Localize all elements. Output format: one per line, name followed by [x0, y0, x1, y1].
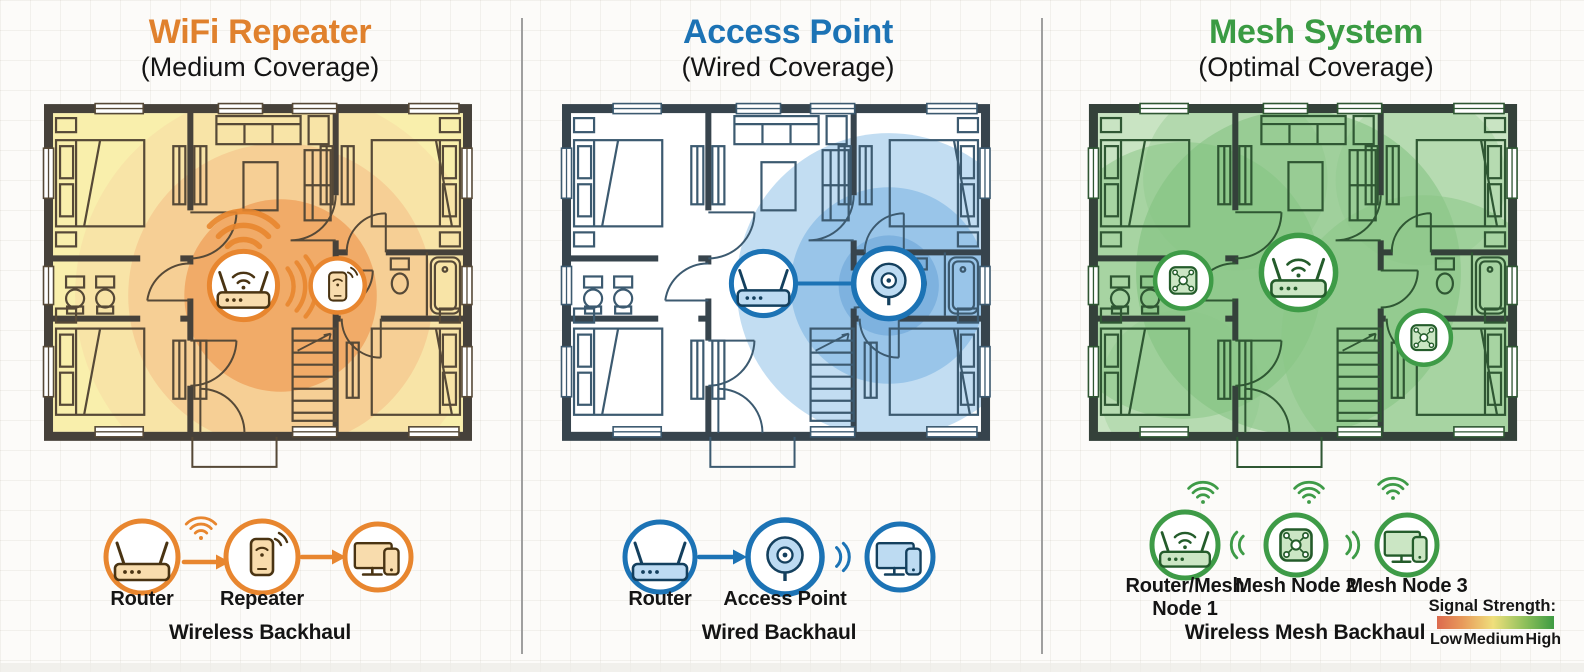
- legend-label-access-point: Access Point: [710, 588, 860, 611]
- signal-low-label: Low: [1430, 631, 1462, 649]
- router-marker: [731, 251, 795, 315]
- panel-divider: [1041, 18, 1043, 654]
- router-marker: [1261, 235, 1335, 309]
- floor-plan-access-point: [558, 100, 994, 476]
- mesh-node-1-marker: [1155, 252, 1211, 308]
- panel-header: Mesh System (Optimal Coverage): [1056, 14, 1576, 82]
- mesh-node-icon: [1281, 530, 1312, 561]
- wifi-waves-icon: [1231, 532, 1243, 558]
- panel-subtitle: (Wired Coverage): [528, 53, 1048, 82]
- panel-title: WiFi Repeater: [0, 14, 520, 51]
- signal-high-label: High: [1525, 631, 1561, 649]
- mesh-node-3-marker: [1397, 311, 1451, 365]
- signal-medium-label: Medium: [1464, 631, 1524, 649]
- mesh-node-icon: [1411, 325, 1436, 350]
- wifi-fan-icon: [1189, 482, 1218, 504]
- panel-access-point: Access Point (Wired Coverage): [528, 0, 1048, 672]
- wifi-fan-icon: [186, 518, 216, 540]
- panel-wifi-repeater: WiFi Repeater (Medium Coverage): [0, 0, 520, 672]
- repeater-marker: [311, 258, 365, 312]
- panel-divider: [521, 18, 523, 654]
- wifi-fan-icon: [1379, 478, 1408, 500]
- bottom-edge-strip: [0, 663, 1584, 672]
- panel-mesh-system: Mesh System (Optimal Coverage): [1056, 0, 1576, 672]
- panel-subtitle: (Medium Coverage): [0, 53, 520, 82]
- wifi-fan-icon: [1295, 482, 1324, 504]
- legend-label-node3: Mesh Node 3: [1337, 575, 1477, 598]
- backhaul-label: Wired Backhaul: [519, 621, 1039, 645]
- floor-plan-mesh: [1083, 100, 1523, 476]
- signal-gradient-bar: [1437, 616, 1554, 629]
- panel-header: WiFi Repeater (Medium Coverage): [0, 14, 520, 82]
- signal-strength-labels: Low Medium High: [1430, 631, 1561, 649]
- signal-strength-title: Signal Strength:: [1426, 597, 1556, 616]
- mesh-node-icon: [1170, 267, 1196, 293]
- floor-plan-repeater: [40, 100, 476, 476]
- access-point-marker: [854, 248, 924, 318]
- wifi-waves-icon: [837, 543, 850, 570]
- panel-title: Access Point: [528, 14, 1048, 51]
- router-marker: [209, 251, 277, 319]
- panel-header: Access Point (Wired Coverage): [528, 14, 1048, 82]
- panel-title: Mesh System: [1056, 14, 1576, 51]
- legend-label-repeater: Repeater: [187, 588, 337, 611]
- backhaul-label: Wireless Backhaul: [0, 621, 520, 645]
- wifi-waves-icon: [1347, 532, 1359, 558]
- wifi-comparison-infographic: WiFi Repeater (Medium Coverage): [0, 0, 1584, 672]
- panel-subtitle: (Optimal Coverage): [1056, 53, 1576, 82]
